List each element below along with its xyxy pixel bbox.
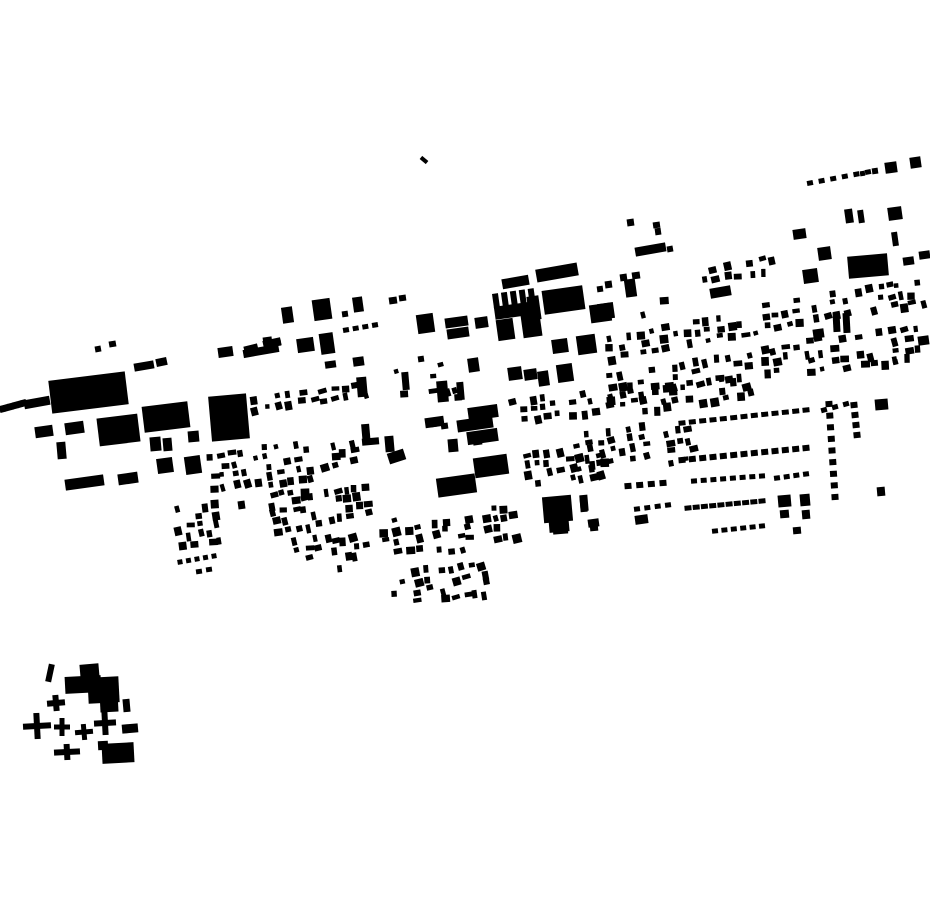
- large-buildings-layer: [23, 156, 930, 764]
- figure-ground-map: [0, 0, 930, 924]
- figure-ground-map-canvas: [0, 0, 930, 924]
- building-rows-layer: [0, 169, 871, 565]
